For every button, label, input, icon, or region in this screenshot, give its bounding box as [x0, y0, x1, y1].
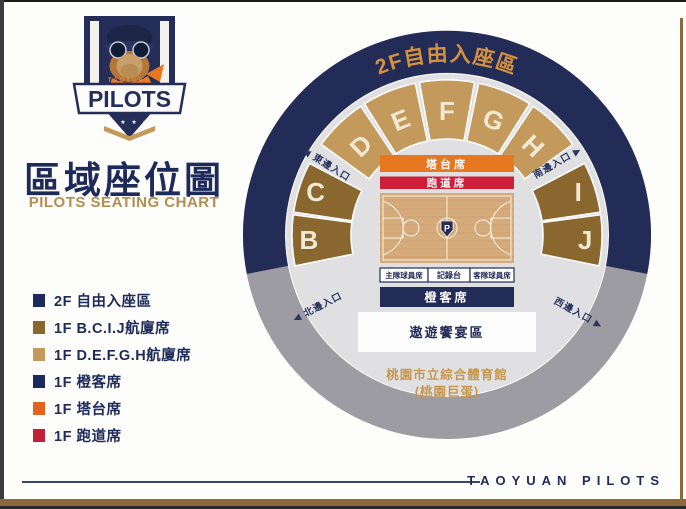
venue-name-line2: (桃園巨蛋): [415, 384, 479, 399]
venue-name-line1: 桃園市立綜合體育館: [386, 367, 508, 382]
section-j-label: J: [578, 225, 592, 255]
away-bench-label: 客隊球員席: [472, 270, 511, 280]
legend-swatch: [33, 321, 45, 334]
logo-stars: ★ ★ ★ ★: [109, 119, 150, 126]
legend-label: 1F 塔台席: [54, 398, 121, 419]
bench-row: 主隊球員席 記錄台 客隊球員席: [380, 268, 514, 282]
legend-item-away: 1F 橙客席: [33, 373, 191, 390]
tower-seats-label: 塔台席: [426, 157, 468, 171]
center-court-logo-letter: P: [444, 224, 450, 234]
legend-item-bcij: 1F B.C.I.J航廈席: [33, 319, 191, 336]
page-subtitle: PILOTS SEATING CHART: [8, 194, 240, 211]
legend-label: 1F D.E.F.G.H航廈席: [54, 344, 191, 365]
logo-wordmark: PILOTS: [88, 86, 171, 112]
legend-label: 1F 跑道席: [54, 425, 121, 446]
section-c-label: C: [306, 177, 325, 207]
right-edge: [680, 18, 683, 509]
section-f-label: F: [439, 96, 455, 126]
legend-swatch: [33, 294, 45, 307]
away-seats-label: 橙客席: [424, 290, 469, 305]
arena-seating-diagram: 2F自由入座區 D E F G H C B I J ◀ 東邊入口 南邊入口 ▶ …: [225, 15, 675, 465]
seat-legend: 2F 自由入座區 1F B.C.I.J航廈席 1F D.E.F.G.H航廈席 1…: [33, 292, 191, 454]
banquet-zone-label: 遨遊饗宴區: [409, 325, 484, 340]
home-bench-label: 主隊球員席: [385, 270, 423, 280]
scorer-table-label: 記錄台: [437, 270, 461, 280]
basketball-court: P: [380, 193, 514, 263]
legend-label: 1F 橙客席: [54, 371, 121, 392]
legend-item-defgh: 1F D.E.F.G.H航廈席: [33, 346, 191, 363]
footer-wordmark: TAOYUAN PILOTS: [467, 473, 665, 488]
legend-item-tower: 1F 塔台席: [33, 400, 191, 417]
legend-swatch: [33, 375, 45, 388]
legend-label: 1F B.C.I.J航廈席: [54, 317, 170, 338]
runway-seats-label: 跑道席: [427, 177, 468, 190]
left-edge: [0, 0, 4, 509]
logo-stripe-left: [90, 21, 99, 83]
section-i-label: I: [575, 177, 582, 207]
bottom-brown-bar: [0, 499, 686, 506]
legend-swatch: [33, 429, 45, 442]
footer-rule: [22, 481, 480, 483]
top-edge: [0, 0, 686, 2]
legend-swatch: [33, 402, 45, 415]
legend-label: 2F 自由入座區: [54, 290, 151, 311]
team-logo: TAOYUAN PILOTS ★ ★ ★ ★: [72, 8, 188, 142]
section-b-label: B: [300, 225, 319, 255]
legend-item-2f-free: 2F 自由入座區: [33, 292, 191, 309]
legend-swatch: [33, 348, 45, 361]
legend-item-runway: 1F 跑道席: [33, 427, 191, 444]
